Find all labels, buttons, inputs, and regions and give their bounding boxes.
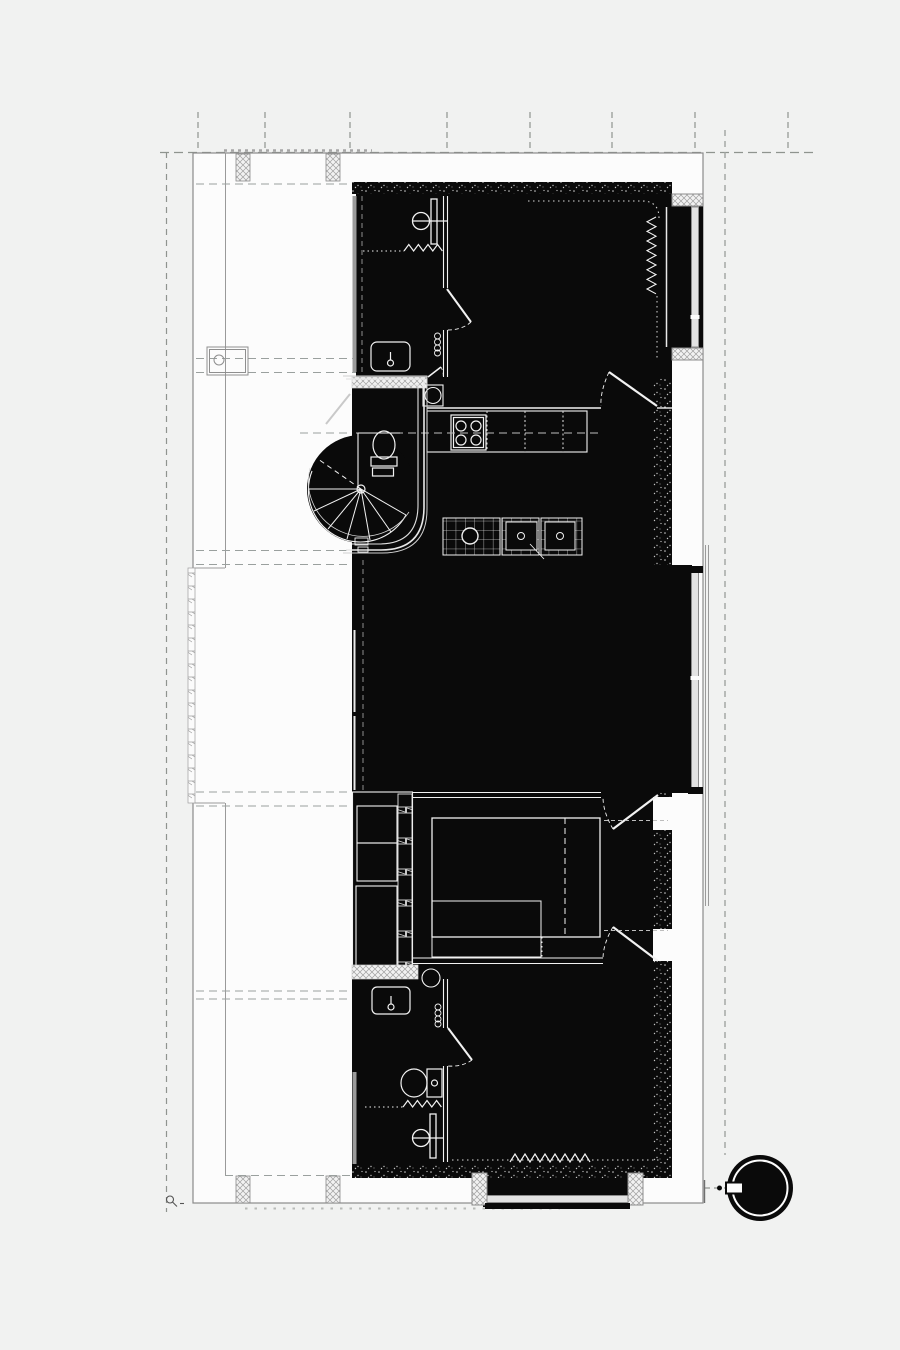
basin-icon: [506, 522, 537, 550]
kitchen-island: [443, 518, 582, 559]
apartment-black-mass: [307, 186, 703, 1207]
floor-plan-page: [0, 0, 900, 1350]
island-sink-icon: [462, 528, 478, 544]
bottom-bedroom-window: [487, 1196, 628, 1203]
balcony-railing: [706, 545, 709, 906]
left-glazing-bottom: [353, 1072, 357, 1164]
grid-tick-lines: [198, 112, 788, 152]
top-bedroom-window: [692, 207, 699, 347]
basin-icon: [545, 522, 575, 550]
benchmark-icon: [167, 1196, 188, 1207]
floor-plan-drawing: [0, 0, 900, 1350]
garden-fence-strip: [188, 568, 195, 803]
left-glazing-top: [353, 196, 357, 372]
wall-hatch: [352, 965, 418, 979]
tree-icon: [717, 1155, 793, 1221]
